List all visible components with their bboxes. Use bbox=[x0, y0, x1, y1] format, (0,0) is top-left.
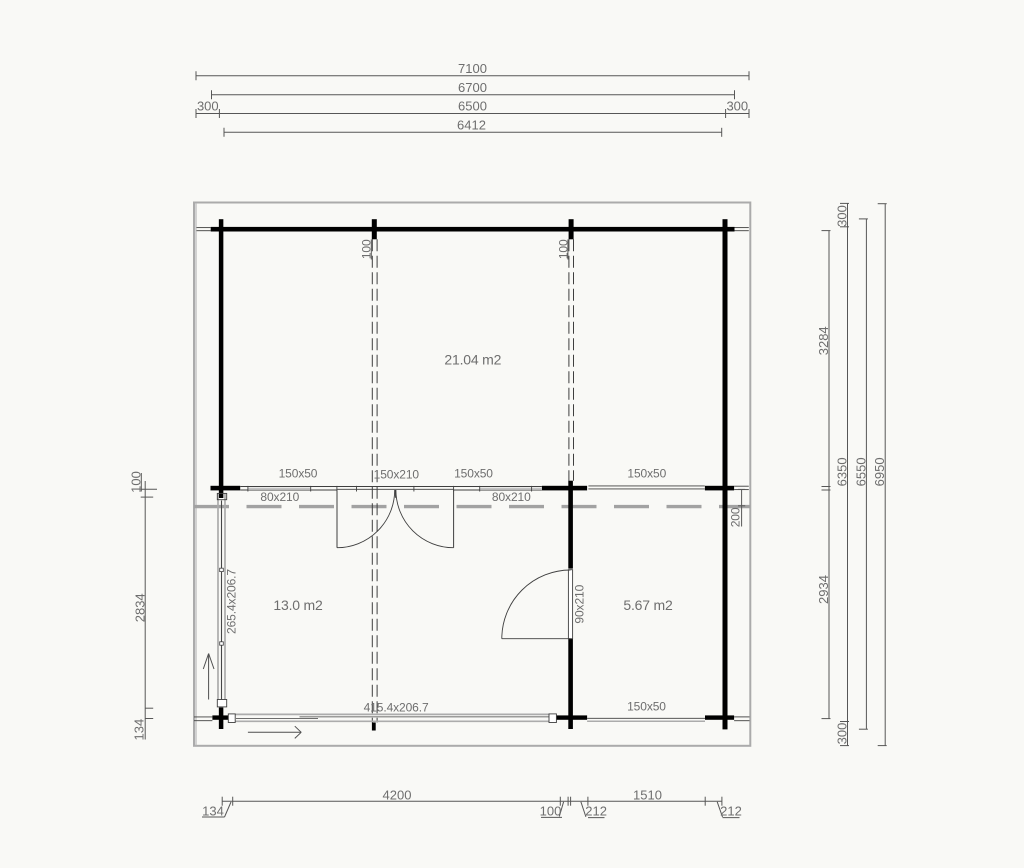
svg-text:4200: 4200 bbox=[383, 788, 412, 803]
svg-text:212: 212 bbox=[585, 804, 607, 819]
svg-text:2934: 2934 bbox=[816, 575, 831, 604]
svg-text:200: 200 bbox=[729, 507, 743, 527]
svg-text:21.04 m2: 21.04 m2 bbox=[444, 352, 501, 368]
svg-text:6350: 6350 bbox=[835, 457, 850, 486]
svg-text:90x210: 90x210 bbox=[572, 584, 586, 623]
svg-text:3284: 3284 bbox=[816, 326, 831, 355]
svg-text:265.4x206.7: 265.4x206.7 bbox=[225, 569, 239, 634]
svg-text:150x50: 150x50 bbox=[279, 466, 318, 480]
svg-text:100: 100 bbox=[129, 471, 144, 493]
svg-text:6550: 6550 bbox=[853, 457, 868, 486]
svg-text:7100: 7100 bbox=[458, 61, 487, 76]
svg-text:100: 100 bbox=[556, 239, 570, 259]
svg-text:150x50: 150x50 bbox=[454, 466, 493, 480]
svg-text:80x210: 80x210 bbox=[492, 490, 531, 504]
svg-text:100: 100 bbox=[360, 239, 374, 259]
svg-text:300: 300 bbox=[197, 99, 219, 114]
svg-text:150x50: 150x50 bbox=[627, 466, 666, 480]
svg-text:300: 300 bbox=[726, 99, 748, 114]
svg-text:134: 134 bbox=[202, 803, 224, 818]
svg-text:6950: 6950 bbox=[872, 457, 887, 486]
svg-text:300: 300 bbox=[835, 723, 850, 745]
svg-text:1510: 1510 bbox=[633, 788, 662, 803]
svg-text:150x50: 150x50 bbox=[627, 700, 666, 714]
svg-text:212: 212 bbox=[720, 804, 742, 819]
svg-text:134: 134 bbox=[132, 719, 147, 741]
svg-text:415.4x206.7: 415.4x206.7 bbox=[364, 701, 429, 715]
svg-text:80x210: 80x210 bbox=[260, 490, 299, 504]
svg-text:5.67 m2: 5.67 m2 bbox=[623, 597, 673, 613]
svg-text:6500: 6500 bbox=[458, 99, 487, 114]
svg-text:13.0 m2: 13.0 m2 bbox=[273, 597, 323, 613]
svg-text:300: 300 bbox=[835, 205, 850, 227]
svg-text:150x210: 150x210 bbox=[374, 467, 420, 481]
svg-text:100: 100 bbox=[540, 804, 562, 819]
svg-text:6700: 6700 bbox=[458, 80, 487, 95]
svg-text:6412: 6412 bbox=[457, 118, 486, 133]
svg-text:2834: 2834 bbox=[132, 593, 147, 622]
